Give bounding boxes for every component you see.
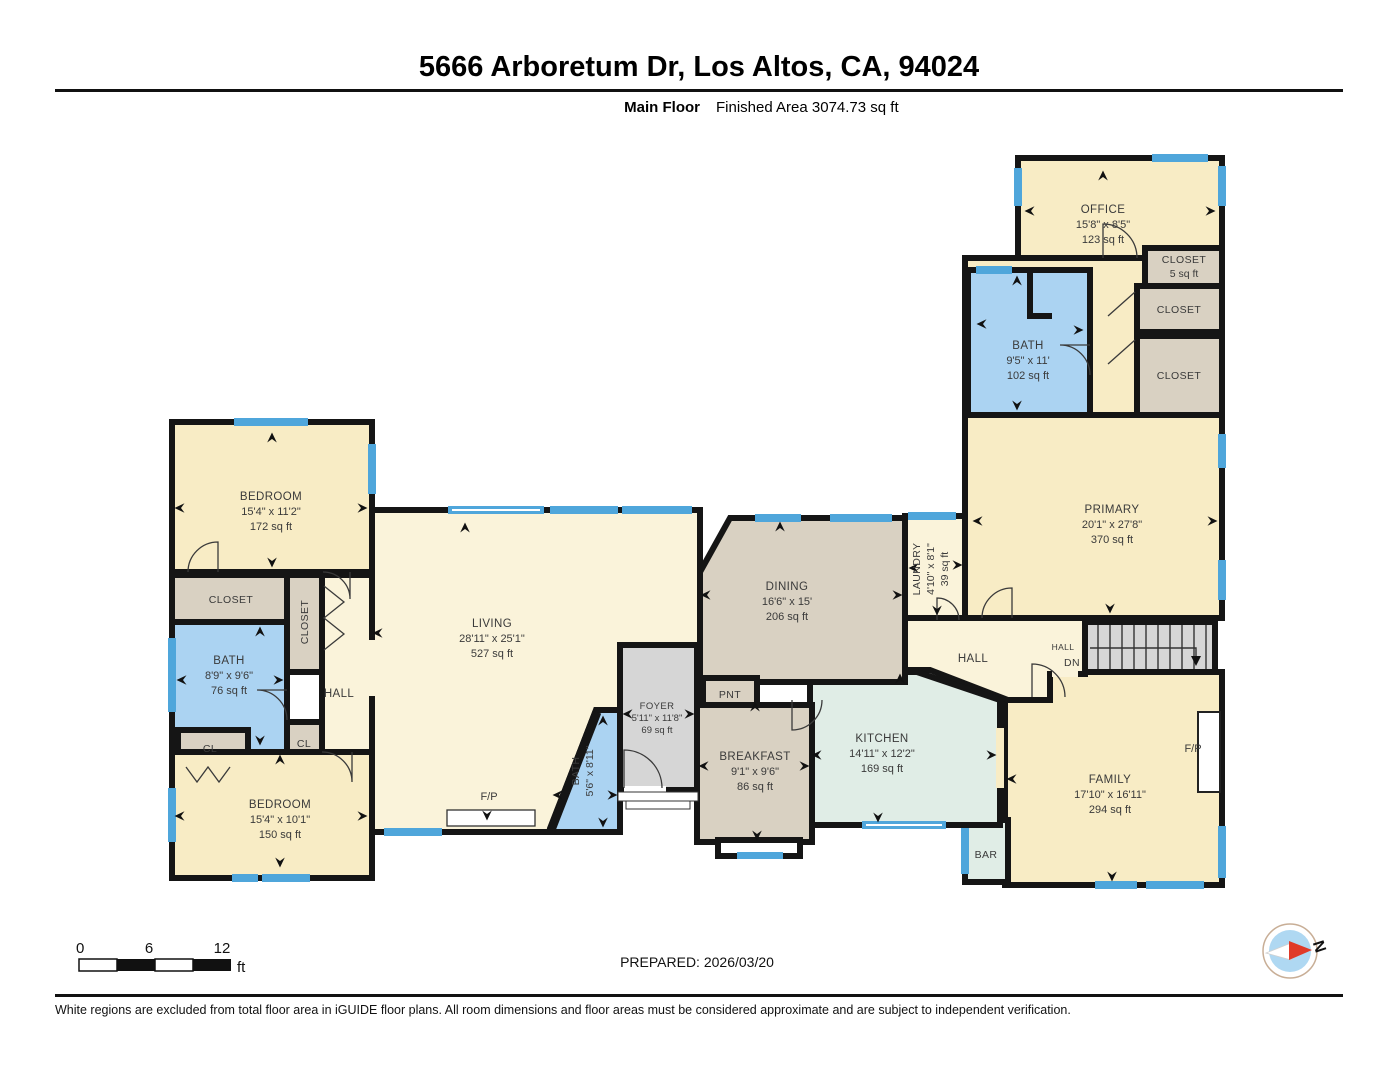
window (961, 828, 969, 874)
bedroom-top-dims: 15'4" x 11'2" (241, 506, 301, 518)
scale-mid: 6 (145, 940, 153, 957)
laundry-name: LAUNDRY (911, 543, 923, 596)
closet-small-area: 5 sq ft (1170, 268, 1199, 280)
closet-lower-name: CLOSET (1157, 370, 1202, 382)
primary-area: 370 sq ft (1091, 534, 1133, 546)
room-hall-left (322, 575, 372, 760)
window (234, 418, 308, 426)
dining-name: DINING (766, 581, 809, 593)
family-name: FAMILY (1089, 774, 1131, 786)
living-fireplace-label: F/P (480, 791, 497, 803)
stairs-dn-label: DN (1064, 657, 1080, 669)
scale-start: 0 (76, 940, 84, 957)
window (755, 514, 801, 522)
window (1146, 881, 1204, 889)
window (368, 444, 376, 494)
dining-label: DINING 16'6" x 15' 206 sq ft (762, 581, 812, 623)
bedroom-top-area: 172 sq ft (250, 521, 292, 533)
rooms (172, 158, 1222, 885)
bath-primary-label: BATH 9'5" x 11' 102 sq ft (1006, 340, 1049, 382)
opening (368, 640, 376, 696)
window (1218, 434, 1226, 468)
foyer-dims: 5'11" x 11'8" (632, 713, 683, 724)
breakfast-dims: 9'1" x 9'6" (731, 766, 779, 778)
floor-plan-page: 5666 Arboretum Dr, Los Altos, CA, 94024 … (0, 0, 1398, 1080)
pantry-label: PNT (719, 689, 741, 701)
office-name: OFFICE (1081, 204, 1126, 216)
bath-primary-dims: 9'5" x 11' (1006, 355, 1049, 367)
finished-area-label: Finished Area 3074.73 sq ft (716, 99, 899, 116)
window (908, 512, 956, 520)
window (622, 506, 692, 514)
laundry-area: 39 sq ft (939, 552, 951, 587)
window (1218, 826, 1226, 878)
breakfast-area: 86 sq ft (737, 781, 773, 793)
bath-left-name: BATH (213, 655, 244, 667)
window (262, 874, 310, 882)
footer-divider (55, 994, 1343, 997)
header-divider (55, 89, 1343, 92)
scale-segment (79, 959, 117, 971)
living-dims: 28'11" x 25'1" (459, 633, 525, 645)
cl-left-name: CL (203, 743, 217, 755)
closet-left-name: CLOSET (209, 594, 254, 606)
bath-primary-name: BATH (1012, 340, 1043, 352)
kitchen-area: 169 sq ft (861, 763, 903, 775)
living-area: 527 sq ft (471, 648, 513, 660)
breakfast-name: BREAKFAST (719, 751, 790, 763)
laundry-dims: 4'10" x 8'1" (925, 543, 937, 595)
window (976, 266, 1012, 274)
entry-step (626, 801, 690, 809)
room-primary (965, 415, 1222, 618)
opening (996, 728, 1004, 788)
scale-unit: ft (237, 959, 246, 976)
closet-hall-name: CLOSET (299, 600, 311, 645)
family-area: 294 sq ft (1089, 804, 1131, 816)
kitchen-dims: 14'11" x 12'2" (849, 748, 915, 760)
hall-left-name: HALL (324, 688, 355, 700)
kitchen-name: KITCHEN (855, 733, 908, 745)
foyer-area: 69 sq ft (641, 725, 673, 736)
window (232, 874, 258, 882)
entry-step (618, 792, 698, 801)
bedroom-bottom-name: BEDROOM (249, 799, 311, 811)
window (1152, 154, 1208, 162)
floor-label: Main Floor (624, 99, 700, 116)
scale-end: 12 (214, 940, 231, 957)
bath-center-name: BATH (570, 757, 582, 786)
hall-right-name: HALL (958, 653, 989, 665)
closet-small-name: CLOSET (1162, 254, 1207, 266)
scale-segment (117, 959, 155, 971)
office-area: 123 sq ft (1082, 234, 1124, 246)
bedroom-top-name: BEDROOM (240, 491, 302, 503)
office-dims: 15'8" x 8'5" (1076, 219, 1130, 231)
living-name: LIVING (472, 618, 512, 630)
cl-mid-name: CL (297, 738, 311, 750)
window (1095, 881, 1137, 889)
dining-dims: 16'6" x 15' (762, 596, 812, 608)
window (168, 788, 176, 842)
family-fireplace-label: F/P (1184, 743, 1201, 755)
foyer-name: FOYER (640, 701, 675, 712)
floor-plan-svg: 5666 Arboretum Dr, Los Altos, CA, 94024 … (0, 0, 1398, 1080)
office-label: OFFICE 15'8" x 8'5" 123 sq ft (1076, 204, 1130, 246)
window (1218, 166, 1226, 206)
footer-disclaimer: White regions are excluded from total fl… (55, 1003, 1071, 1017)
hall-stairs-name: HALL (1052, 642, 1075, 652)
window (550, 506, 618, 514)
primary-name: PRIMARY (1085, 504, 1140, 516)
scale-segment (155, 959, 193, 971)
dining-area: 206 sq ft (766, 611, 808, 623)
window (168, 638, 176, 712)
bedroom-bottom-area: 150 sq ft (259, 829, 301, 841)
window (830, 514, 892, 522)
closet-upper-name: CLOSET (1157, 304, 1202, 316)
scale-bar: 0 6 12 ft (76, 940, 246, 976)
closet-hall-label: CLOSET (299, 600, 311, 645)
window (1014, 168, 1022, 206)
bath-left-dims: 8'9" x 9'6" (205, 670, 253, 682)
primary-dims: 20'1" x 27'8" (1082, 519, 1142, 531)
scale-segment (193, 959, 231, 971)
window (737, 852, 783, 859)
family-dims: 17'10" x 16'11" (1074, 789, 1146, 801)
bath-primary-area: 102 sq ft (1007, 370, 1049, 382)
living-hearth-box (447, 810, 535, 826)
bar-label: BAR (975, 849, 998, 861)
bath-center-dims: 5'6" x 8'11" (584, 745, 596, 796)
compass-icon: N (1263, 924, 1329, 978)
window (384, 828, 442, 836)
bath-left-area: 76 sq ft (211, 685, 247, 697)
window (1218, 560, 1226, 600)
bedroom-bottom-dims: 15'4" x 10'1" (250, 814, 310, 826)
page-title: 5666 Arboretum Dr, Los Altos, CA, 94024 (419, 51, 979, 83)
prepared-label: PREPARED: 2026/03/20 (620, 954, 774, 970)
